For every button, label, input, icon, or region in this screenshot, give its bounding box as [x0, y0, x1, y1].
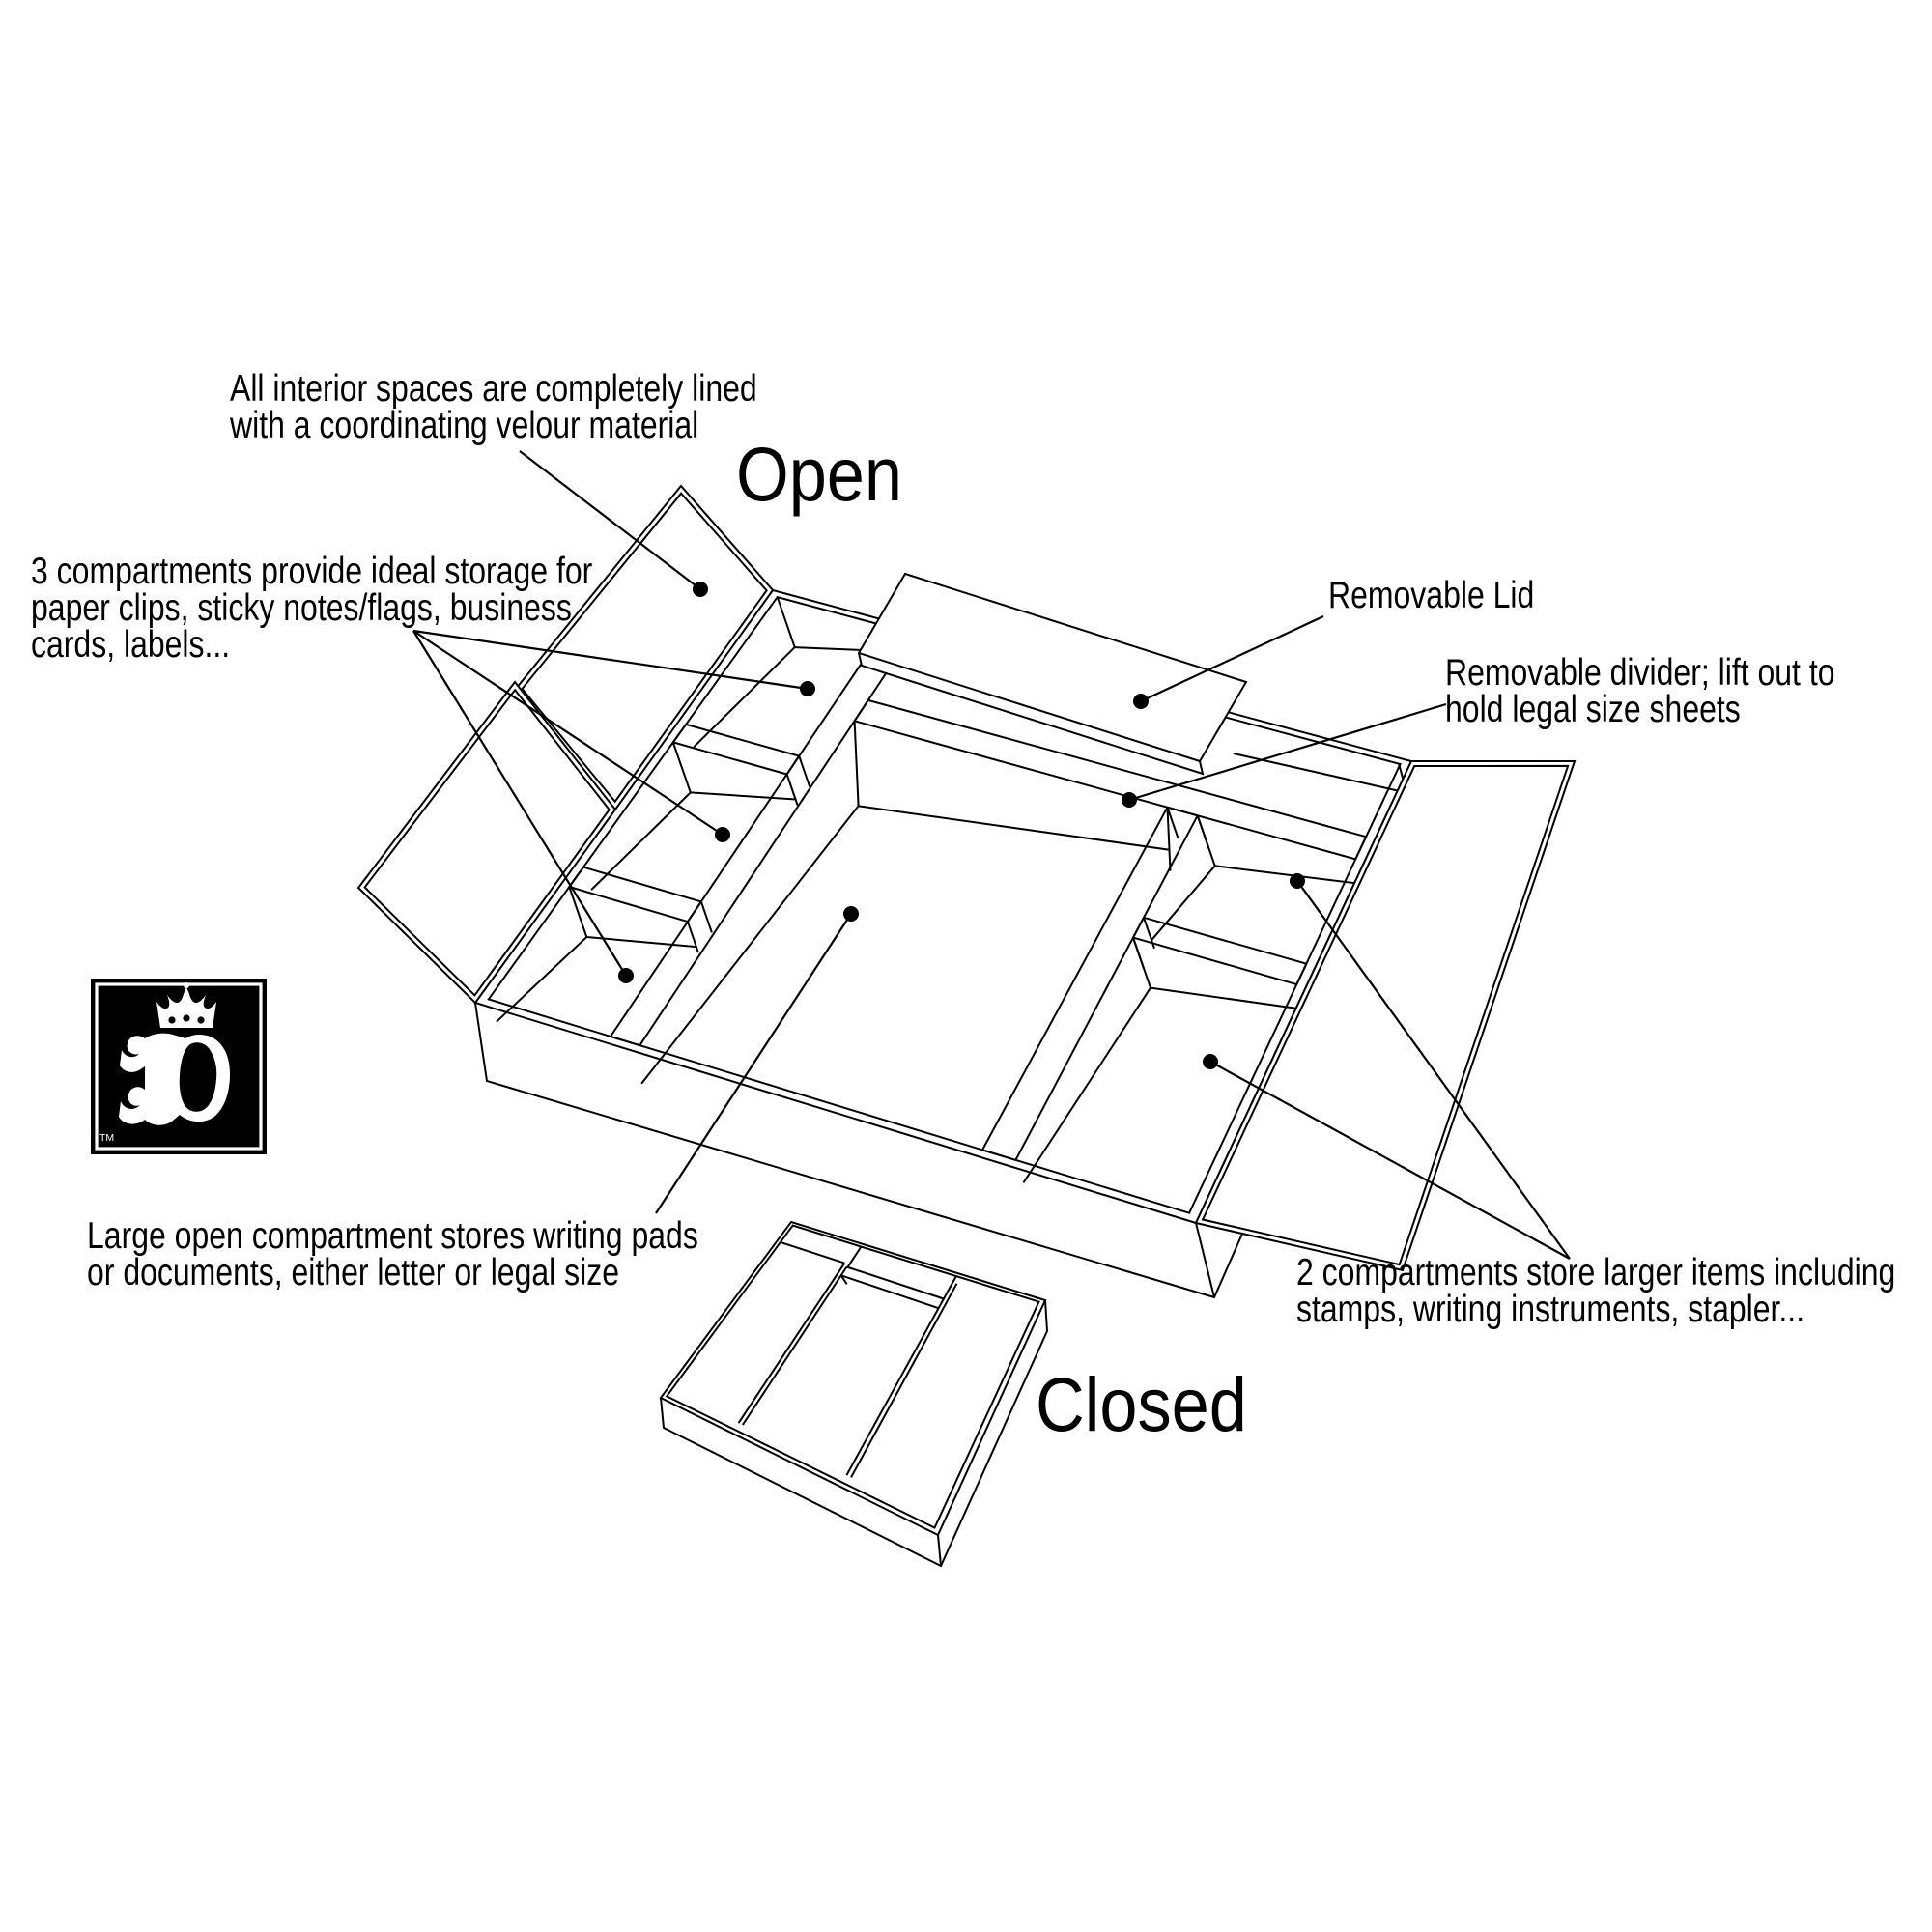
svg-text:TM: TM [99, 1132, 114, 1144]
